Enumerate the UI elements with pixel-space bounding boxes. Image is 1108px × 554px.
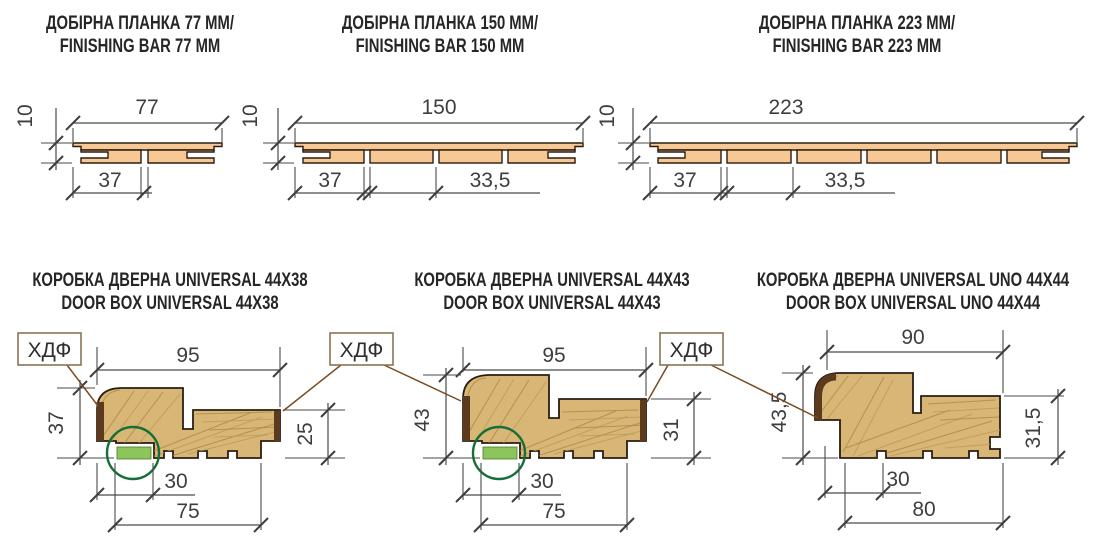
doorbox-44x38-seal: [117, 447, 151, 459]
doorbox-44x43-hdf-edge-right: [640, 400, 646, 442]
finishing-bar-223-diagram: 223 10 37 33,5: [596, 96, 1084, 200]
doorbox-uno-44x44-dim-bottom: 80: [912, 498, 935, 521]
bar-150-dim-offset: 37: [318, 169, 341, 192]
technical-drawing-sheet: ДОБІРНА ПЛАНКА 77 ММ/ FINISHING BAR 77 M…: [0, 0, 1108, 554]
doorbox-44x43-dim-left: 43: [411, 408, 434, 431]
hdf-callout-3: ХДФ: [647, 333, 818, 418]
hdf-callout-1: ХДФ: [18, 333, 98, 406]
doorbox-44x38-hdf-edge-right: [274, 411, 280, 442]
doorbox-44x43-dim-top: 95: [542, 344, 565, 367]
doorbox-uno-44x44-dim-seal: 30: [886, 468, 909, 491]
hdf-callout-1-label: ХДФ: [28, 339, 72, 362]
doorbox-uno-44x44-dim-right: 31,5: [1022, 408, 1045, 449]
finishing-bar-150-diagram: 150 10 37 33,5: [239, 96, 590, 200]
bar-77-dim-offset: 37: [98, 169, 121, 192]
bar-77-dim-thickness: 10: [14, 104, 37, 127]
doorbox-44x38-hdf-edge-left: [97, 402, 104, 441]
doorbox-44x43-dim-seal: 30: [530, 470, 553, 493]
doorbox-44x38-dim-left: 37: [45, 411, 68, 434]
drawing-canvas: 77 10 37: [0, 0, 1108, 554]
doorbox-44x38-dim-seal: 30: [164, 470, 187, 493]
bar-223-dim-step: 33,5: [825, 169, 866, 192]
doorbox-44x43-profile: [463, 375, 646, 458]
doorbox-44x38-diagram: 95 37 25 30 75: [45, 344, 345, 532]
doorbox-44x43-diagram: 95 43 31 30 75: [411, 344, 711, 532]
doorbox-44x43-dim-right: 31: [660, 418, 683, 441]
bar-223-profile: [650, 143, 1077, 163]
bar-223-dim-offset: 37: [673, 169, 696, 192]
bar-150-dim-width: 150: [421, 96, 456, 119]
doorbox-uno-44x44-profile: [815, 373, 1000, 458]
doorbox-uno-44x44-dim-top: 90: [901, 326, 924, 349]
doorbox-44x38-dim-top: 95: [176, 344, 199, 367]
bar-150-dim-thickness: 10: [239, 104, 262, 127]
hdf-callout-2: ХДФ: [283, 333, 461, 411]
doorbox-44x43-hdf-edge-left: [463, 396, 470, 441]
bar-223-dim-width: 223: [768, 96, 803, 119]
bar-150-dim-step: 33,5: [470, 169, 511, 192]
doorbox-44x43-dim-bottom: 75: [542, 500, 565, 523]
doorbox-uno-44x44-dim-left: 43,5: [768, 392, 791, 433]
bar-150-profile: [295, 143, 583, 163]
doorbox-44x38-dim-right: 25: [294, 422, 317, 445]
bar-223-dim-thickness: 10: [596, 104, 619, 127]
doorbox-44x43-seal: [483, 447, 517, 459]
doorbox-uno-44x44-diagram: 90 43,5 31,5 30 80: [768, 326, 1065, 530]
bar-77-profile: [73, 143, 222, 163]
finishing-bar-77-diagram: 77 10 37: [14, 96, 229, 200]
hdf-callout-3-label: ХДФ: [670, 339, 714, 362]
doorbox-44x38-dim-bottom: 75: [176, 500, 199, 523]
bar-77-dim-width: 77: [135, 96, 158, 119]
hdf-callout-2-label: ХДФ: [340, 339, 384, 362]
